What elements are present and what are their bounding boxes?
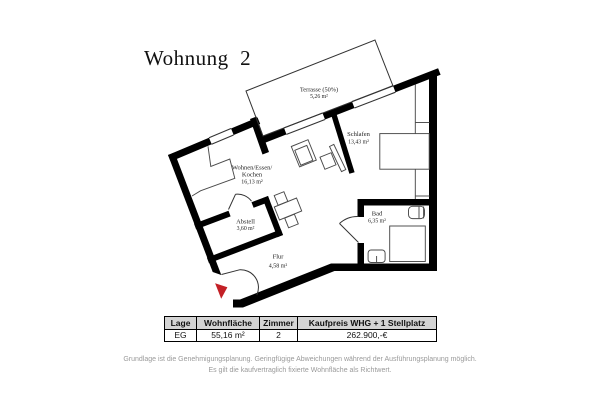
svg-text:Wohnen/Essen/: Wohnen/Essen/: [232, 165, 272, 172]
svg-text:3,60 m²: 3,60 m²: [237, 226, 255, 232]
svg-text:4,58 m²: 4,58 m²: [269, 264, 288, 270]
svg-text:13,43 m²: 13,43 m²: [348, 140, 369, 146]
svg-text:6,35 m²: 6,35 m²: [368, 219, 386, 225]
svg-text:Schlafen: Schlafen: [347, 131, 370, 138]
svg-text:Terrasse (50%): Terrasse (50%): [300, 86, 338, 93]
svg-text:Flur: Flur: [273, 254, 285, 261]
svg-text:Abstell: Abstell: [236, 219, 255, 226]
svg-text:Kochen: Kochen: [242, 172, 263, 179]
svg-text:16,13 m²: 16,13 m²: [241, 180, 263, 186]
svg-text:Bad: Bad: [372, 211, 383, 218]
svg-text:5,26 m²: 5,26 m²: [310, 94, 328, 100]
